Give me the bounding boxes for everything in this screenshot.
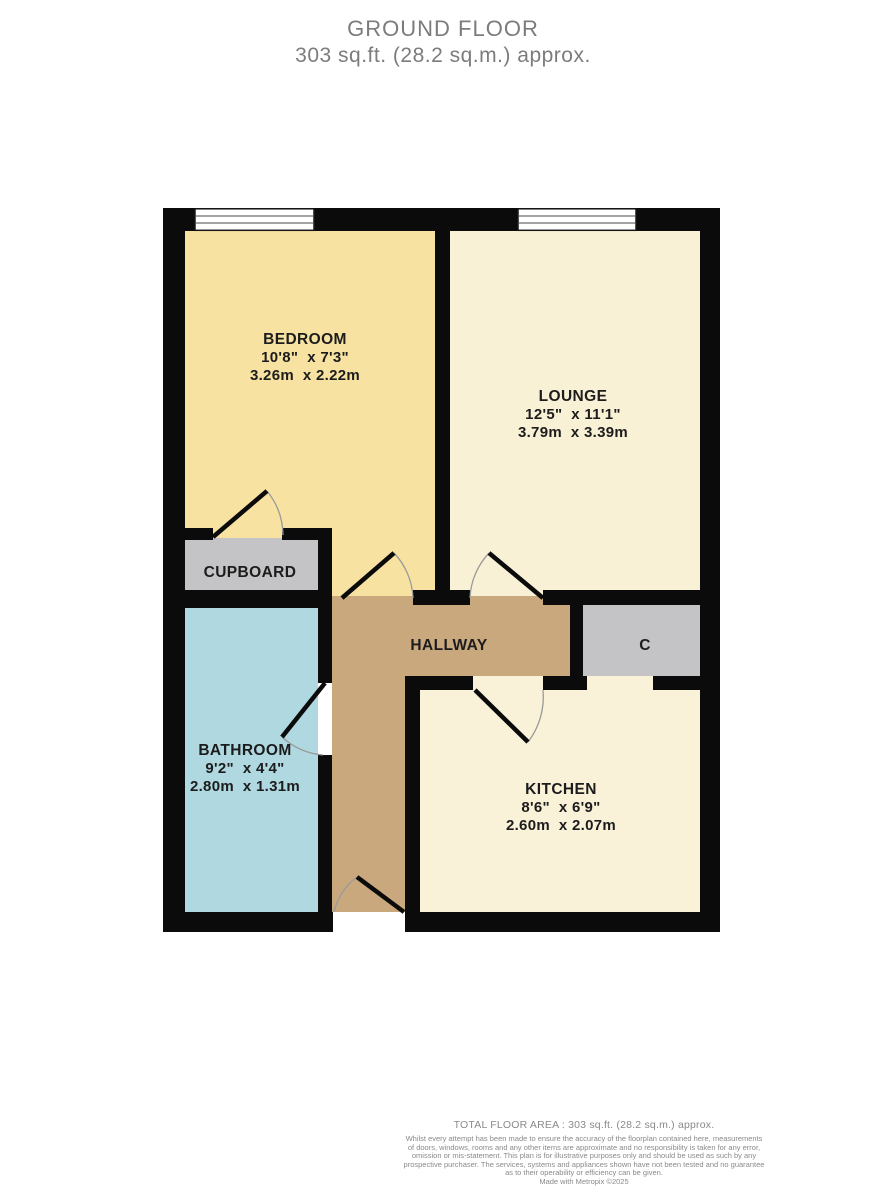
lounge-window-icon: [518, 209, 636, 231]
lounge-dims-metric: 3.79m x 3.39m: [518, 424, 628, 441]
wall-bathroom-right-upper: [318, 608, 332, 683]
cupboard-label: CUPBOARD: [204, 564, 297, 581]
wall-exterior-bottom: [163, 912, 720, 932]
bedroom-window-icon: [195, 209, 314, 231]
hallway-label: HALLWAY: [410, 637, 487, 654]
wall-bathroom-right-lower: [318, 755, 332, 912]
bedroom-dims-imperial: 10'8" x 7'3": [261, 349, 349, 366]
disclaimer-text: Whilst every attempt has been made to en…: [388, 1135, 780, 1187]
lounge-dims-imperial: 12'5" x 11'1": [525, 406, 621, 423]
bedroom-dims-metric: 3.26m x 2.22m: [250, 367, 360, 384]
lounge-label: LOUNGE: [539, 388, 608, 405]
hallway-floor-lower: [332, 676, 405, 912]
metropix-credit: Made with Metropix ©2025: [388, 1178, 780, 1187]
wall-bedroom-lounge: [435, 228, 450, 605]
wall-kitchen-top-left: [405, 676, 473, 690]
wall-hallway-kitchen: [405, 676, 420, 912]
wall-exterior-right: [700, 208, 720, 932]
bedroom-label: BEDROOM: [263, 331, 347, 348]
wall-hallway-top-stub: [413, 590, 470, 605]
entry-door-opening: [333, 912, 405, 932]
total-floor-area: TOTAL FLOOR AREA : 303 sq.ft. (28.2 sq.m…: [388, 1119, 780, 1131]
wall-exterior-left: [163, 208, 185, 932]
plan-footer: TOTAL FLOOR AREA : 303 sq.ft. (28.2 sq.m…: [388, 1119, 780, 1187]
wall-lounge-bottom: [543, 590, 701, 605]
wall-cupboard-top-left: [185, 528, 213, 540]
floorplan-drawing: BEDROOM 10'8" x 7'3" 3.26m x 2.22m LOUNG…: [0, 0, 886, 1192]
bathroom-dims-metric: 2.80m x 1.31m: [190, 778, 300, 795]
kitchen-label: KITCHEN: [525, 781, 597, 798]
kitchen-dims-metric: 2.60m x 2.07m: [506, 817, 616, 834]
floorplan-page: GROUND FLOOR 303 sq.ft. (28.2 sq.m.) app…: [0, 0, 886, 1192]
wall-storage-c-bottom: [653, 676, 701, 690]
wall-storage-c-left: [570, 590, 583, 690]
bathroom-dims-imperial: 9'2" x 4'4": [205, 760, 284, 777]
bathroom-label: BATHROOM: [198, 742, 291, 759]
storage-c-label: C: [639, 637, 651, 654]
hallway-floor-upper: [332, 596, 570, 676]
kitchen-dims-imperial: 8'6" x 6'9": [521, 799, 600, 816]
wall-bathroom-top: [163, 590, 332, 608]
